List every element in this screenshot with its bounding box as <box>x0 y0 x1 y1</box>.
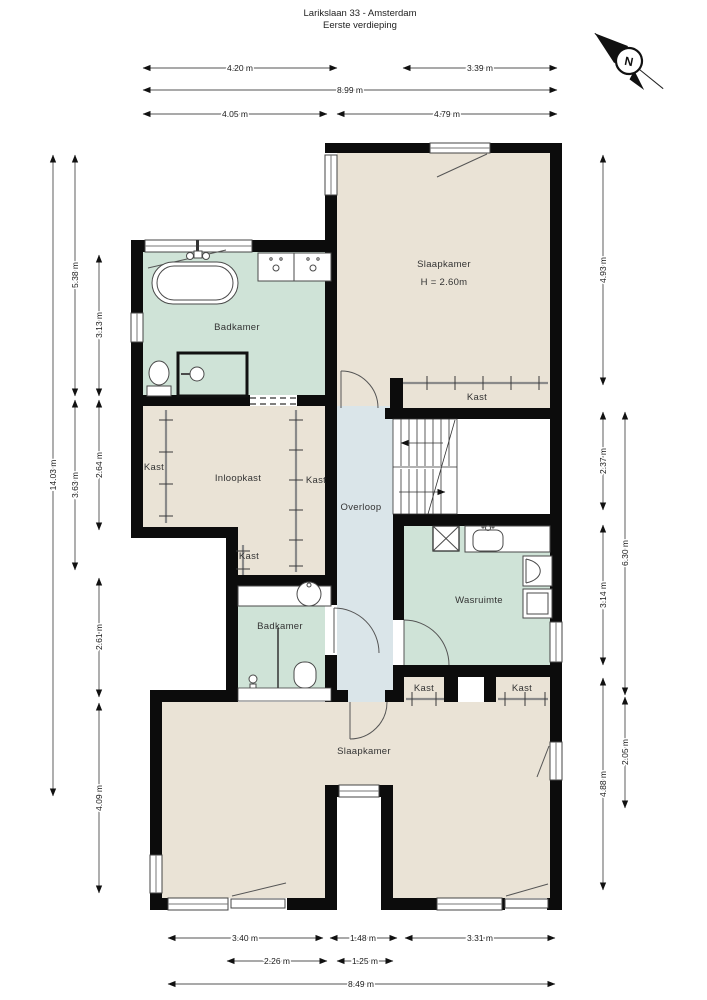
window-slaapkamer-onder-left <box>150 855 162 893</box>
tub-faucet <box>203 253 210 260</box>
tub-faucet <box>187 253 194 260</box>
room-slaapkamer-onder <box>162 702 550 898</box>
plan-title: Larikslaan 33 - Amsterdam <box>304 8 417 19</box>
dimensions-right: 4.93 m 2.37 m 3.14 m 4.88 m 6.30 m 2.05 … <box>598 155 630 890</box>
dim-label: 4.09 m <box>94 785 104 811</box>
window-wasruimte-right <box>550 622 562 662</box>
dim-label: 4.05 m <box>222 109 248 119</box>
dim-label: 2.64 m <box>94 452 104 478</box>
floorplan-svg: Larikslaan 33 - Amsterdam Eerste verdiep… <box>0 0 707 1000</box>
label-overloop: Overloop <box>341 502 382 513</box>
label-badkamer-onder: Badkamer <box>257 621 303 632</box>
dim-label: 5.38 m <box>70 262 80 288</box>
dim-label: 3.14 m <box>598 582 608 608</box>
dim-label: 2.05 m <box>620 739 630 765</box>
dim-label: 4.79 m <box>434 109 460 119</box>
label-slaapkamer-onder: Slaapkamer <box>337 746 391 757</box>
label-inloopkast: Inloopkast <box>215 473 261 484</box>
doorway-overloop-slaapkamer <box>348 690 385 702</box>
window-badkamer-left <box>131 313 143 342</box>
dim-label: 3.39 m <box>467 63 493 73</box>
dashed-opening <box>250 395 297 406</box>
floorplan-page: Larikslaan 33 - Amsterdam Eerste verdiep… <box>0 0 707 1000</box>
window-slaapkamer-left <box>325 155 337 195</box>
dim-label: 3.13 m <box>94 312 104 338</box>
dryer <box>523 556 552 586</box>
label-kast-klein: Kast <box>239 551 259 562</box>
dim-label: 4.20 m <box>227 63 253 73</box>
dim-label: 3.40 m <box>232 933 258 943</box>
dim-label: 4.88 m <box>598 771 608 797</box>
dim-label: 2.37 m <box>598 448 608 474</box>
shower-valve <box>249 675 257 689</box>
room-inloopkast <box>143 406 325 527</box>
washing-machine <box>523 589 552 618</box>
dimensions-top: 4.20 m 3.39 m 8.99 m 4.05 m 4.79 m <box>143 63 557 119</box>
dim-label: 4.93 m <box>598 257 608 283</box>
shower-head <box>190 367 204 381</box>
dim-label: 14.03 m <box>48 460 58 491</box>
dimensions-left: 14.03 m 5.38 m 3.63 m 3.13 m 2.64 m 2.61… <box>48 155 104 893</box>
dim-label: 3.31 m <box>467 933 493 943</box>
label-kast-slaapkamer: Kast <box>467 392 487 403</box>
dim-label: 2.61 m <box>94 624 104 650</box>
compass-rose: N <box>586 23 671 99</box>
label-kast-mid: Kast <box>306 475 326 486</box>
shower-tray <box>238 688 331 701</box>
dim-label: 8.49 m <box>348 979 374 989</box>
dim-label: 3.63 m <box>70 472 80 498</box>
dim-label: 6.30 m <box>620 540 630 566</box>
double-vanity <box>258 253 331 281</box>
stairwell <box>393 419 550 514</box>
plan-subtitle: Eerste verdieping <box>323 20 397 31</box>
label-slaapkamer-top: Slaapkamer <box>417 259 471 270</box>
room-overloop <box>337 406 393 702</box>
duct-shaft <box>433 526 459 551</box>
label-slaapkamer-top-height: H = 2.60m <box>421 277 468 288</box>
label-kast-onder-links: Kast <box>414 683 434 694</box>
window-bottom-left <box>168 898 228 910</box>
label-kast-onder-rechts: Kast <box>512 683 532 694</box>
dim-label: 1.25 m <box>352 956 378 966</box>
dim-label: 8.99 m <box>337 85 363 95</box>
window-notch <box>339 785 379 797</box>
dim-label: 2.26 m <box>264 956 290 966</box>
toilet <box>294 662 316 688</box>
toilet <box>147 361 171 396</box>
dimensions-bottom: 3.40 m 1.48 m 3.31 m 2.26 m 1.25 m 8.49 … <box>168 933 555 989</box>
round-basin <box>297 582 321 606</box>
dim-label: 1.48 m <box>350 933 376 943</box>
label-wasruimte: Wasruimte <box>455 595 503 606</box>
window-bottom-right <box>437 898 502 910</box>
label-badkamer-top: Badkamer <box>214 322 260 333</box>
label-kast-left: Kast <box>144 462 164 473</box>
